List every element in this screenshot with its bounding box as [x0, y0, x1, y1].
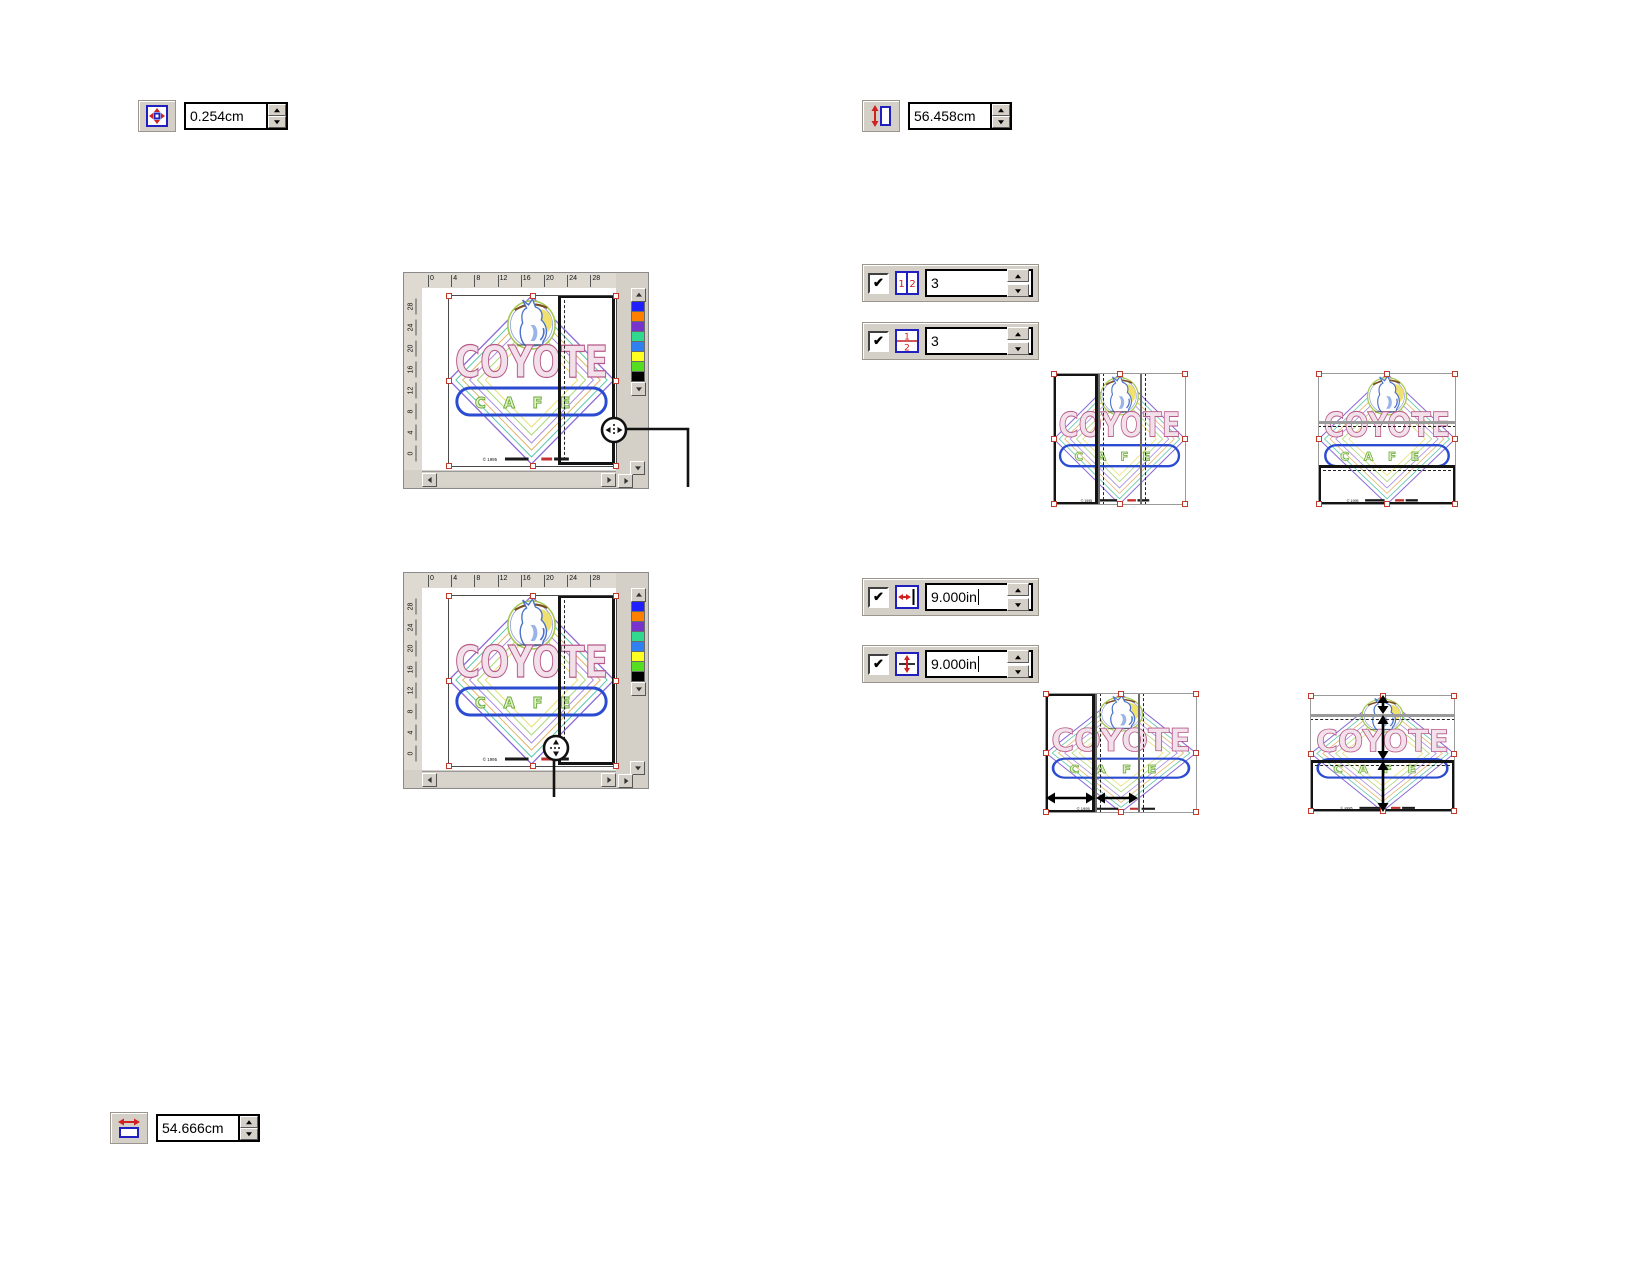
- selection-handle[interactable]: [446, 678, 452, 684]
- horizontal-ruler: 0481216202428: [422, 573, 616, 589]
- selection-handle[interactable]: [1451, 808, 1457, 814]
- selection-handle[interactable]: [613, 593, 619, 599]
- selection-handle[interactable]: [1193, 809, 1199, 815]
- vertical-ruler: 2824201612840: [404, 288, 423, 470]
- rows-icon-glyph: 1 2: [895, 329, 919, 353]
- vertical-scroll-down-button[interactable]: [630, 761, 645, 775]
- h-ruler-tick: 8: [474, 275, 480, 287]
- column-width-icon-glyph: [895, 585, 919, 609]
- height-arrow: [1378, 761, 1389, 812]
- selection-handle[interactable]: [1452, 501, 1458, 507]
- selection-handle[interactable]: [1384, 371, 1390, 377]
- selection-handle[interactable]: [1384, 501, 1390, 507]
- rows-control: ✔ 1 2 3: [862, 322, 1039, 360]
- v-ruler-tick: 28: [408, 599, 417, 615]
- svg-text:2: 2: [904, 344, 910, 354]
- row-height-spinner[interactable]: [1007, 650, 1029, 678]
- nudge-icon: [138, 100, 176, 132]
- color-palette: [631, 588, 645, 696]
- rows-icon: 1 2: [895, 329, 919, 353]
- column-width-preview: [1045, 693, 1197, 813]
- column-width-spinner[interactable]: [1007, 583, 1029, 611]
- h-ruler-tick: 16: [521, 275, 531, 287]
- h-ruler-tick: 4: [451, 275, 457, 287]
- v-ruler-tick: 24: [408, 620, 417, 636]
- height-arrow: [1378, 715, 1389, 760]
- h-ruler-tick: 12: [498, 275, 508, 287]
- selection-handle[interactable]: [1316, 436, 1322, 442]
- selection-handle[interactable]: [1051, 371, 1057, 377]
- selection-handle[interactable]: [1452, 371, 1458, 377]
- palette-swatch[interactable]: [631, 612, 645, 622]
- column-width-checkbox[interactable]: ✔: [868, 587, 889, 608]
- column-width-input[interactable]: 9.000in: [925, 583, 1033, 611]
- selection-handle[interactable]: [613, 463, 619, 469]
- nudge-offset-spinner[interactable]: [266, 104, 286, 128]
- h-ruler-tick: 20: [544, 275, 554, 287]
- svg-text:1: 1: [904, 333, 910, 343]
- column-width-arrows: [1045, 789, 1197, 807]
- columns-input[interactable]: 3: [925, 269, 1033, 297]
- palette-swatch[interactable]: [631, 312, 645, 322]
- column-drag-cursor-callout[interactable]: [600, 416, 628, 444]
- selection-handle[interactable]: [1452, 436, 1458, 442]
- palette-scroll-up-button[interactable]: [631, 588, 646, 602]
- rows-value: 3: [927, 333, 939, 349]
- object-width-input[interactable]: 54.666cm: [156, 1114, 260, 1142]
- drawing-window-2: 0481216202428 2824201612840: [403, 572, 649, 789]
- columns-checkbox[interactable]: ✔: [868, 273, 889, 294]
- palette-swatch[interactable]: [631, 602, 645, 612]
- selection-handle[interactable]: [446, 463, 452, 469]
- text-cursor: [978, 656, 979, 672]
- h-ruler-tick: 24: [567, 575, 577, 587]
- selection-handle[interactable]: [1117, 371, 1123, 377]
- horizontal-ruler: 0481216202428: [422, 273, 616, 289]
- palette-swatch[interactable]: [631, 362, 645, 372]
- selection-handle[interactable]: [1051, 501, 1057, 507]
- h-ruler-tick: 20: [544, 575, 554, 587]
- nudge-offset-input[interactable]: 0.254cm: [184, 102, 288, 130]
- palette-swatch[interactable]: [631, 642, 645, 652]
- palette-swatch[interactable]: [631, 672, 645, 682]
- nudge-icon-glyph: [146, 105, 168, 127]
- drawing-window-1: 0481216202428 2824201612840: [403, 272, 649, 489]
- columns-preview: [1053, 373, 1186, 505]
- selection-handle[interactable]: [1182, 436, 1188, 442]
- v-ruler-tick: 16: [408, 362, 417, 378]
- columns-spinner[interactable]: [1007, 269, 1029, 297]
- selection-handle[interactable]: [446, 763, 452, 769]
- v-ruler-tick: 8: [408, 404, 417, 420]
- selection-handle[interactable]: [530, 593, 536, 599]
- v-ruler-tick: 4: [408, 725, 417, 741]
- palette-swatches: [631, 302, 645, 382]
- columns-value: 3: [927, 275, 939, 291]
- selection-handle[interactable]: [1308, 751, 1314, 757]
- palette-scroll-up-button[interactable]: [631, 288, 646, 302]
- scroll-left-button[interactable]: [422, 773, 437, 787]
- selection-handle[interactable]: [1118, 809, 1124, 815]
- selection-box: [448, 595, 617, 767]
- scroll-right-button[interactable]: [601, 473, 616, 487]
- selection-handle[interactable]: [446, 293, 452, 299]
- selection-handle[interactable]: [1193, 691, 1199, 697]
- selection-handle[interactable]: [613, 378, 619, 384]
- row-drag-cursor-callout[interactable]: [542, 734, 570, 762]
- selection-handle[interactable]: [613, 293, 619, 299]
- callout-lines: [0, 0, 1650, 1275]
- selection-handle[interactable]: [1308, 808, 1314, 814]
- object-height-icon-glyph: [869, 104, 893, 128]
- v-ruler-tick: 4: [408, 425, 417, 441]
- selection-handle[interactable]: [446, 593, 452, 599]
- v-ruler-tick: 8: [408, 704, 417, 720]
- object-height-value: 56.458cm: [910, 108, 975, 124]
- selection-handle[interactable]: [1043, 809, 1049, 815]
- row-height-icon-glyph: [895, 652, 919, 676]
- palette-swatch[interactable]: [631, 322, 645, 332]
- object-height-spinner[interactable]: [990, 104, 1010, 128]
- h-ruler-tick: 8: [474, 575, 480, 587]
- palette-swatches: [631, 602, 645, 682]
- selection-handle[interactable]: [1182, 501, 1188, 507]
- row-height-preview: [1310, 695, 1455, 812]
- columns-icon-glyph: 1 2: [895, 271, 919, 295]
- h-ruler-tick: 4: [451, 575, 457, 587]
- v-ruler-tick: 28: [408, 299, 417, 315]
- object-width-icon-glyph: [117, 1116, 141, 1140]
- v-ruler-tick: 16: [408, 662, 417, 678]
- rows-input[interactable]: 3: [925, 327, 1033, 355]
- selection-handle[interactable]: [613, 678, 619, 684]
- selection-handle[interactable]: [1451, 693, 1457, 699]
- palette-scroll-down-button[interactable]: [631, 682, 646, 696]
- columns-control: ✔ 1 2 3: [862, 264, 1039, 302]
- h-ruler-tick: 16: [521, 575, 531, 587]
- selection-handle[interactable]: [1118, 691, 1124, 697]
- selection-handle[interactable]: [1051, 436, 1057, 442]
- palette-swatch[interactable]: [631, 622, 645, 632]
- height-arrow: [1378, 695, 1389, 714]
- vertical-scroll-down-button[interactable]: [630, 461, 645, 475]
- scroll-left-button[interactable]: [422, 473, 437, 487]
- v-ruler-tick: 24: [408, 320, 417, 336]
- corner-scroll-right-button[interactable]: [618, 474, 633, 488]
- rows-checkbox[interactable]: ✔: [868, 331, 889, 352]
- object-height-input[interactable]: 56.458cm: [908, 102, 1012, 130]
- h-ruler-tick: 12: [498, 575, 508, 587]
- v-ruler-tick: 12: [408, 683, 417, 699]
- selection-handle[interactable]: [530, 293, 536, 299]
- rows-preview: [1318, 373, 1456, 505]
- h-ruler-tick: 28: [590, 275, 600, 287]
- rows-spinner[interactable]: [1007, 327, 1029, 355]
- v-ruler-tick: 20: [408, 641, 417, 657]
- palette-swatch[interactable]: [631, 332, 645, 342]
- row-height-arrows: [1374, 695, 1392, 812]
- v-ruler-tick: 12: [408, 383, 417, 399]
- palette-swatch[interactable]: [631, 652, 645, 662]
- row-height-input[interactable]: 9.000in: [925, 650, 1033, 678]
- selection-handle[interactable]: [530, 463, 536, 469]
- selection-box: [1053, 373, 1186, 505]
- v-ruler-tick: 20: [408, 341, 417, 357]
- selection-handle[interactable]: [1043, 691, 1049, 697]
- selection-handle[interactable]: [1316, 501, 1322, 507]
- row-height-control: ✔ 9.000in: [862, 645, 1039, 683]
- row-height-value: 9.000in: [927, 656, 977, 672]
- object-width-icon: [110, 1112, 148, 1144]
- column-width-icon: [895, 585, 919, 609]
- h-ruler-tick: 28: [590, 575, 600, 587]
- h-ruler-tick: 0: [428, 275, 434, 287]
- color-palette: [631, 288, 645, 396]
- column-width-value: 9.000in: [927, 589, 977, 605]
- selection-handle[interactable]: [1182, 371, 1188, 377]
- palette-scroll-down-button[interactable]: [631, 382, 646, 396]
- selection-handle[interactable]: [1451, 751, 1457, 757]
- selection-handle[interactable]: [1316, 371, 1322, 377]
- selection-handle[interactable]: [446, 378, 452, 384]
- selection-handle[interactable]: [1117, 501, 1123, 507]
- width-arrow: [1046, 793, 1095, 804]
- row-drag-cursor-icon: [542, 734, 570, 762]
- corner-scroll-right-button[interactable]: [618, 774, 633, 788]
- h-ruler-tick: 24: [567, 275, 577, 287]
- nudge-offset-control: 0.254cm: [138, 100, 288, 132]
- object-width-value: 54.666cm: [158, 1120, 223, 1136]
- vertical-ruler: 2824201612840: [404, 588, 423, 770]
- column-drag-cursor-icon: [600, 416, 628, 444]
- object-width-control: 54.666cm: [110, 1112, 260, 1144]
- horizontal-scrollbar[interactable]: [422, 471, 616, 486]
- v-ruler-tick: 0: [408, 746, 417, 762]
- manual-page: { "controls": { "nudge_offset": {"value"…: [0, 0, 1650, 1275]
- ruler-origin-box: [404, 273, 423, 289]
- object-height-icon: [862, 100, 900, 132]
- palette-swatch[interactable]: [631, 372, 645, 382]
- selection-box: [1318, 373, 1456, 505]
- nudge-offset-value: 0.254cm: [186, 108, 244, 124]
- palette-swatch[interactable]: [631, 302, 645, 312]
- v-ruler-tick: 0: [408, 446, 417, 462]
- column-width-control: ✔ 9.000in: [862, 578, 1039, 616]
- width-arrow: [1096, 793, 1138, 804]
- columns-icon: 1 2: [895, 271, 919, 295]
- palette-swatch[interactable]: [631, 662, 645, 672]
- ruler-origin-box: [404, 573, 423, 589]
- h-ruler-tick: 0: [428, 575, 434, 587]
- selection-handle[interactable]: [1193, 750, 1199, 756]
- object-width-spinner[interactable]: [238, 1116, 258, 1140]
- selection-handle[interactable]: [1308, 693, 1314, 699]
- object-height-control: 56.458cm: [862, 100, 1012, 132]
- horizontal-scrollbar[interactable]: [422, 771, 616, 786]
- svg-text:2: 2: [909, 279, 915, 290]
- selection-box: [448, 295, 617, 467]
- selection-handle[interactable]: [1043, 750, 1049, 756]
- selection-handle[interactable]: [613, 763, 619, 769]
- row-height-checkbox[interactable]: ✔: [868, 654, 889, 675]
- text-cursor: [978, 589, 979, 605]
- svg-text:1: 1: [898, 279, 904, 290]
- palette-swatch[interactable]: [631, 342, 645, 352]
- scroll-right-button[interactable]: [601, 773, 616, 787]
- row-height-icon: [895, 652, 919, 676]
- palette-swatch[interactable]: [631, 352, 645, 362]
- palette-swatch[interactable]: [631, 632, 645, 642]
- selection-handle[interactable]: [530, 763, 536, 769]
